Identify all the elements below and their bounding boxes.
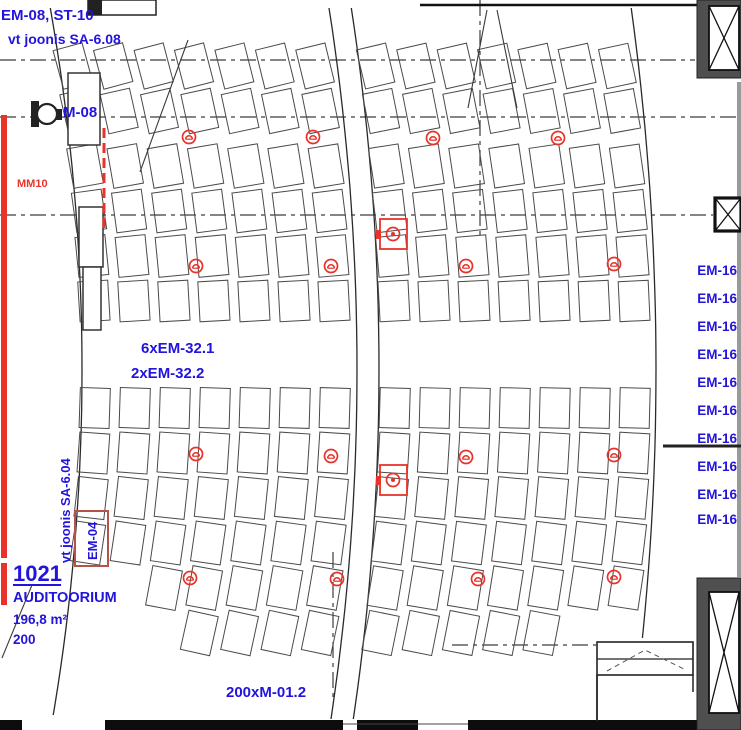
seat (187, 144, 223, 188)
seat (302, 88, 339, 133)
ref-em16-4: EM-16 (697, 347, 737, 362)
seat (362, 610, 399, 655)
seat (402, 610, 439, 655)
seat (371, 521, 406, 565)
seat (237, 432, 270, 474)
seat (146, 566, 183, 611)
floor-outlet-symbols (183, 131, 621, 586)
ref-em16-10: EM-16 (697, 512, 737, 527)
outlet-outer-circle (307, 131, 320, 144)
floor-outlet-icon (460, 260, 473, 273)
device-em04: EM-04 (85, 521, 100, 560)
seat (308, 144, 344, 188)
seat (191, 521, 226, 565)
ref-vt-joonis-sa-608: vt joonis SA-6.08 (8, 31, 121, 47)
bottom-wall-segment (357, 720, 418, 730)
floor-box-icon (376, 465, 407, 495)
outlet-outer-circle (427, 132, 440, 145)
seat (274, 477, 308, 520)
floor-box-dot (391, 478, 395, 482)
seat (618, 280, 650, 321)
seat (453, 189, 487, 232)
outlet-outer-circle (460, 451, 473, 464)
ref-6xem-321: 6xEM-32.1 (141, 340, 214, 357)
room-area: 196,8 m² (13, 612, 68, 627)
seat (409, 144, 445, 188)
floor-outlet-icon (427, 132, 440, 145)
floor-outlet-icon (552, 132, 565, 145)
seat (533, 189, 567, 232)
seat (154, 477, 188, 520)
seat (496, 235, 529, 277)
seat (619, 388, 650, 429)
seat (618, 432, 650, 474)
seat (368, 144, 404, 188)
seat (413, 189, 448, 232)
seat (317, 432, 350, 474)
seat (277, 432, 310, 474)
seat (579, 388, 610, 429)
seat (411, 521, 446, 565)
seat (538, 432, 570, 474)
ref-em16-3: EM-16 (697, 319, 737, 334)
floor-box-dot (391, 232, 395, 236)
seat (523, 611, 560, 656)
seat (449, 144, 485, 188)
seat (458, 280, 490, 321)
seat (110, 521, 146, 565)
seat (613, 189, 647, 232)
seat (278, 280, 310, 322)
seat (367, 566, 403, 610)
seat (262, 88, 300, 133)
seat (483, 611, 520, 656)
seat (495, 477, 529, 520)
floor-outlet-icon (307, 131, 320, 144)
seat (150, 521, 185, 565)
seat (147, 144, 183, 189)
m08-device-motor (37, 104, 57, 124)
seat (536, 235, 569, 277)
seat (159, 388, 190, 429)
seat (523, 89, 560, 134)
outlet-outer-circle (325, 450, 338, 463)
seat (238, 280, 270, 322)
seat (529, 144, 564, 188)
seat (362, 88, 399, 133)
seat (157, 432, 190, 474)
seat (499, 388, 530, 429)
floor-outlet-icon (190, 448, 203, 461)
bottom-wall-segment (468, 720, 697, 730)
seat (261, 610, 299, 655)
floor-box-tab (376, 230, 381, 239)
wall-pier (79, 207, 103, 267)
seat (117, 432, 150, 474)
seat (457, 432, 489, 474)
seat (604, 89, 641, 134)
seat (312, 189, 347, 232)
outlet-outer-circle (608, 571, 621, 584)
seat (268, 144, 304, 188)
floor-outlet-icon (325, 450, 338, 463)
structural-column-mid-right (715, 198, 741, 231)
seat (569, 144, 604, 188)
seat (152, 189, 187, 233)
seating-block-upper (53, 43, 650, 322)
seat (497, 432, 529, 474)
room-capacity: 200 (13, 632, 36, 647)
seat (235, 235, 269, 278)
room-number: 1021 (13, 561, 62, 586)
outlet-outer-circle (552, 132, 565, 145)
aisle-curve (631, 8, 656, 638)
seat (119, 388, 150, 429)
seat (180, 610, 218, 656)
seat (418, 280, 450, 322)
outlet-outer-circle (190, 260, 203, 273)
red-wall-highlight (1, 563, 7, 605)
seat (192, 189, 227, 233)
room-name: AUDITOORIUM (13, 590, 117, 606)
seat (181, 88, 219, 133)
seat (518, 43, 556, 89)
seat (315, 477, 349, 520)
ref-mm10: MM10 (17, 178, 48, 190)
seat (437, 43, 475, 89)
m08-device-stub (56, 109, 62, 120)
seat (221, 88, 259, 133)
floor-plan-view: EM-08, ST-10vt joonis SA-6.08M-08MM106xE… (0, 0, 741, 730)
drawing-edge-shade (737, 82, 741, 577)
seat (296, 43, 335, 89)
seat (228, 144, 264, 188)
seat (271, 521, 306, 565)
seat (199, 388, 230, 429)
seat (141, 88, 179, 134)
seat (379, 388, 410, 429)
ref-em16-2: EM-16 (697, 291, 737, 306)
ref-2xem-322: 2xEM-32.2 (131, 365, 204, 382)
seat (493, 189, 527, 232)
seat (118, 280, 150, 322)
seat (417, 432, 449, 474)
seat (609, 144, 644, 188)
outlet-outer-circle (190, 448, 203, 461)
seat (535, 477, 569, 520)
seat (416, 235, 449, 277)
seating-block-lower (70, 388, 650, 656)
seat (608, 566, 644, 610)
seat (174, 43, 213, 89)
seat (319, 388, 350, 429)
bottom-wall-segment (105, 720, 343, 730)
seat (112, 189, 147, 233)
seat (315, 235, 348, 278)
ref-em16-6: EM-16 (697, 403, 737, 418)
seat (221, 610, 259, 655)
seat (568, 566, 604, 610)
seat (372, 189, 407, 232)
seat (558, 43, 596, 88)
ref-200xm-012: 200xM-01.2 (226, 684, 306, 701)
seat (198, 280, 230, 322)
seat (356, 43, 394, 89)
seat (266, 566, 302, 611)
seat (615, 477, 648, 520)
seat (578, 432, 610, 474)
seat (231, 521, 266, 565)
seat (599, 43, 637, 88)
seat (403, 88, 440, 133)
seat (459, 388, 490, 429)
seat (415, 477, 449, 520)
seat (226, 566, 263, 611)
outlet-outer-circle (460, 260, 473, 273)
wall-pier (83, 267, 101, 330)
red-wall-highlight (1, 115, 7, 558)
seat (442, 610, 479, 655)
seat (572, 521, 607, 564)
floor-plan-canvas: EM-08, ST-10vt joonis SA-6.08M-08MM106xE… (0, 0, 741, 730)
floor-outlet-icon (608, 571, 621, 584)
seat (275, 235, 309, 278)
outlet-outer-circle (325, 260, 338, 273)
seat (311, 521, 346, 565)
m08-device-icon (31, 101, 62, 127)
seat (538, 280, 570, 321)
seat (612, 521, 647, 564)
seat (455, 477, 489, 520)
seat (492, 521, 527, 564)
ref-em08-st10: EM-08, ST-10 (1, 7, 94, 24)
seat (573, 189, 607, 232)
seat (114, 476, 148, 519)
seat (255, 43, 294, 89)
seat (155, 235, 189, 278)
ref-em16-8: EM-16 (697, 459, 737, 474)
seat (378, 280, 410, 322)
seat (272, 189, 307, 232)
floor-outlet-icon (325, 260, 338, 273)
floor-box-icon (376, 219, 407, 249)
section-mark-line (468, 10, 487, 108)
seat (564, 89, 601, 134)
seat (488, 566, 524, 610)
seat (539, 388, 570, 429)
seat (532, 521, 567, 564)
seat (318, 280, 350, 322)
seat (616, 235, 649, 277)
seat (77, 432, 110, 474)
seat (239, 388, 270, 429)
seat (232, 189, 267, 233)
seat (194, 477, 228, 520)
seat (158, 280, 190, 322)
seat (578, 280, 610, 321)
seat (451, 521, 486, 564)
seat (576, 235, 609, 277)
seat (397, 43, 435, 89)
aisle-curve (351, 8, 379, 719)
bottom-wall-segment (0, 720, 22, 730)
section-mark-line (497, 10, 517, 108)
seat (234, 477, 268, 520)
ref-em16-9: EM-16 (697, 487, 737, 502)
floor-box-tab (376, 476, 381, 485)
seat (528, 566, 564, 610)
bottom-wall (0, 720, 697, 730)
ref-em16-7: EM-16 (697, 431, 737, 446)
structural-column-top-right (697, 0, 741, 78)
seat (443, 89, 480, 134)
device-m08: M-08 (63, 104, 97, 121)
seat (498, 280, 530, 321)
seat (419, 388, 450, 429)
ref-em16-1: EM-16 (697, 263, 737, 278)
seat (377, 432, 409, 474)
seat (478, 43, 516, 89)
seat (79, 388, 110, 429)
ref-em16-5: EM-16 (697, 375, 737, 390)
seat (100, 88, 138, 134)
seat (489, 144, 525, 188)
floor-outlet-icon (460, 451, 473, 464)
seat (407, 566, 443, 610)
seat (134, 43, 173, 89)
seat (279, 388, 310, 429)
floor-outlet-icon (190, 260, 203, 273)
structural-column-bottom-right (697, 578, 741, 730)
seat (107, 144, 143, 189)
ref-vt-joonis-sa-604: vt joonis SA-6.04 (58, 457, 73, 563)
seat (115, 235, 149, 278)
aisle-curves (50, 8, 656, 719)
seat (215, 43, 254, 89)
seat (575, 477, 608, 520)
